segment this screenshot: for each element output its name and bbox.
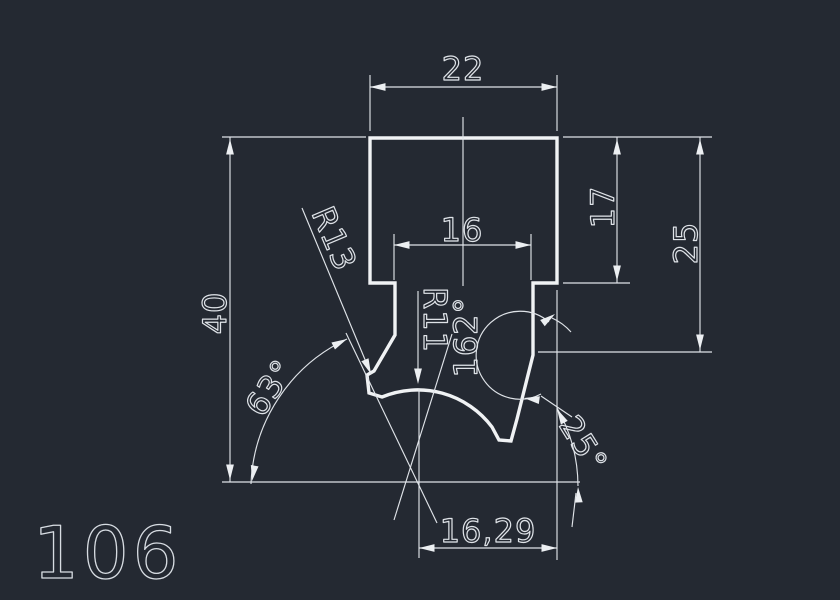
part-profile-outline <box>367 138 557 441</box>
construction-line-right-flank <box>394 334 452 520</box>
dim-angle-vertex-label: 162° <box>447 296 485 377</box>
dimension-depth-step: 17 <box>584 137 622 283</box>
dim-depth-shoulder-label: 25 <box>667 222 705 265</box>
dim-depth-step-label: 17 <box>584 186 622 229</box>
dimension-height-total: 40 <box>196 137 580 482</box>
dim-width-bottom-label: 16,29 <box>440 512 537 550</box>
part-number-label: 106 <box>33 511 182 595</box>
dimension-depth-shoulder: 25 <box>667 137 705 352</box>
dim-height-total-label: 40 <box>196 292 234 335</box>
dim-width-top-label: 22 <box>442 50 485 88</box>
construction-line-left-flank <box>346 333 437 523</box>
dimension-width-bottom: 16,29 <box>419 512 557 552</box>
dim-width-neck-label: 16 <box>441 211 484 249</box>
profile-path <box>367 138 557 441</box>
dimension-angle-flank: 63° <box>237 336 348 484</box>
dimension-radius-flank: R13 <box>302 201 375 376</box>
cad-drawing-canvas: 22 16 17 25 40 R13 <box>0 0 840 600</box>
dimension-angle-vertex: 162° <box>447 296 572 417</box>
cad-drawing-viewport: 22 16 17 25 40 R13 <box>0 0 840 600</box>
dim-radius-flank-label: R13 <box>304 201 365 277</box>
dim-angle-flank-label: 63° <box>237 352 302 423</box>
dimension-angle-edge: 25° <box>551 407 615 527</box>
